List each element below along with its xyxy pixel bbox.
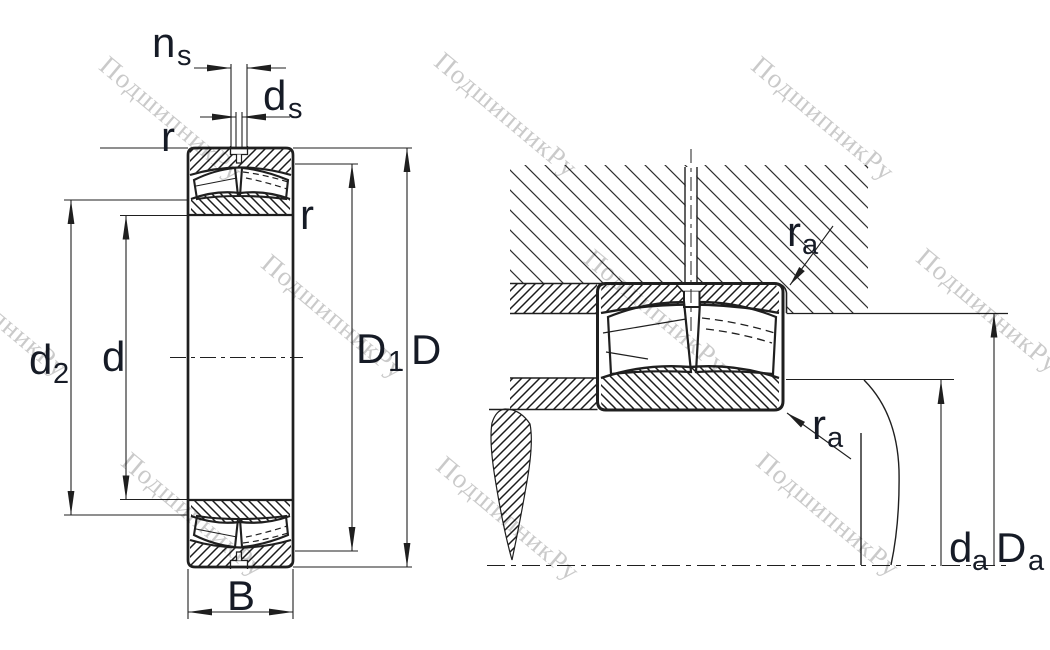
shaft-fillet-relief (491, 409, 531, 560)
label-D1-sub: 1 (388, 346, 404, 378)
label-r-inner: r (300, 191, 314, 238)
left-view-bearing-section (170, 146, 303, 569)
dimension-D (404, 148, 411, 567)
label-ra-housing: r (787, 208, 801, 255)
label-r-outer: r (161, 113, 175, 160)
label-ns: n (152, 19, 175, 66)
label-d: d (102, 333, 125, 380)
lubrication-hole-right (684, 292, 700, 308)
bearing-drawing-page: n s d s r r d 2 d D 1 D B r a r a d a D … (0, 0, 1050, 650)
shaft-shoulder-curve (864, 380, 899, 565)
label-ra-housing-sub: a (802, 229, 819, 261)
dimension-ns (194, 65, 286, 72)
spherical-rollers-right-view (603, 302, 778, 374)
dimension-da (938, 380, 945, 566)
label-da-sub: a (972, 545, 989, 577)
bearing-technical-drawing: n s d s r r d 2 d D 1 D B r a r a d a D … (0, 0, 1050, 650)
label-D1: D (356, 325, 386, 372)
lubrication-hole-bottom (237, 552, 242, 561)
shaft-abutment-ring (510, 378, 597, 409)
label-ds-sub: s (288, 93, 303, 125)
label-d2-sub: 2 (53, 358, 69, 390)
dimension-D1 (349, 164, 356, 551)
label-ns-sub: s (177, 40, 192, 72)
label-da: d (949, 524, 972, 571)
label-D: D (411, 326, 441, 373)
lubrication-hole-top (237, 155, 242, 164)
label-ra-shaft: r (812, 401, 826, 448)
label-Da-sub: a (1028, 545, 1045, 577)
label-d2: d (29, 336, 52, 383)
labels: n s d s r r d 2 d D 1 D B r a r a d a D … (29, 19, 1045, 619)
label-B: B (227, 572, 255, 619)
housing-abutment-ring (510, 284, 597, 313)
label-Da: D (996, 524, 1026, 571)
label-ra-shaft-sub: a (827, 422, 844, 454)
right-view-mounted-section (487, 149, 1012, 566)
label-ds: d (263, 72, 286, 119)
